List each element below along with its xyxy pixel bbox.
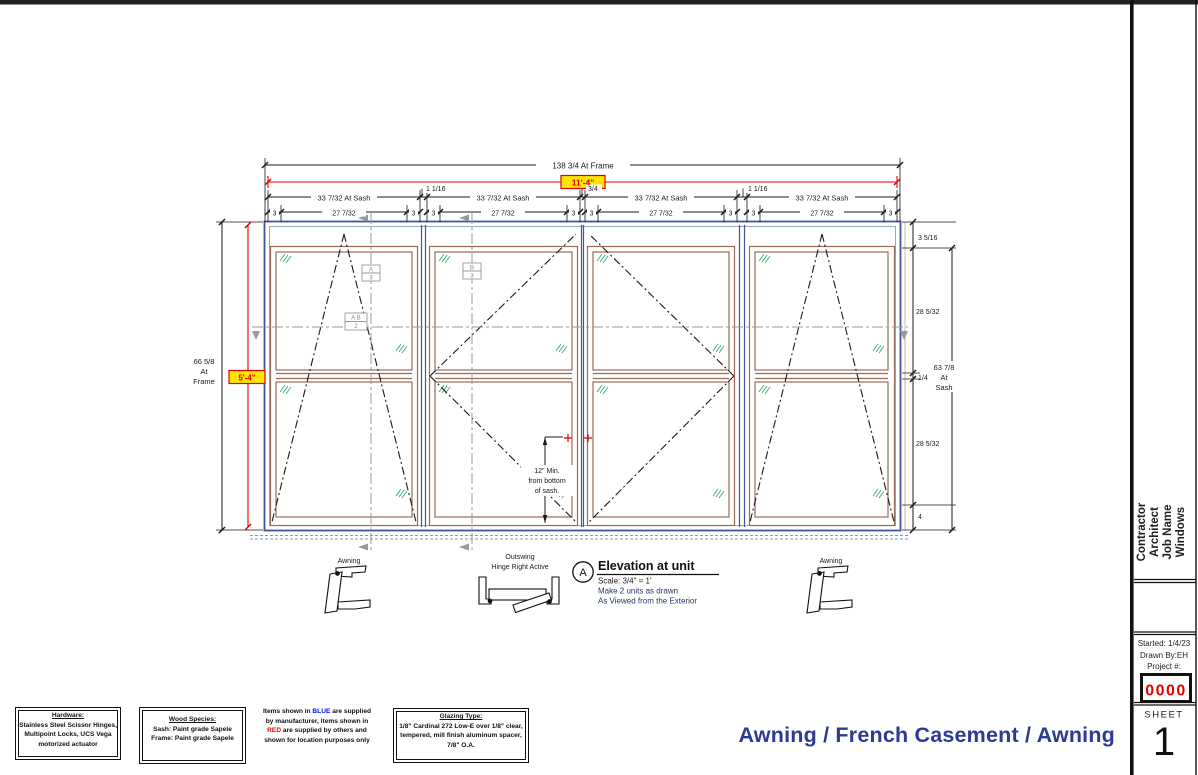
dim-stile-7: 3 [752,211,756,218]
dim-stile-8: 3 [889,211,893,218]
marker-b-letter: B [470,265,474,272]
glazing-note-line: 7/8" O.A. [397,741,525,751]
page-border [0,0,1198,775]
titleblock-contractor: Contractor [1136,502,1148,561]
dim-sash-height-2: At [940,373,948,382]
dim-stile-6: 3 [729,211,733,218]
sheet-number: 1 [1153,720,1175,764]
supply-note-line1: Items shown in BLUE are supplied [254,707,380,717]
glazing-note-title: Glazing Type: [397,712,525,722]
supply-note-line2: by manufacturer, items shown in [254,717,380,727]
sash-panel-3 [588,247,735,526]
dim-rough-height: 5'-4" [238,374,255,383]
dim-glass-width-3: 27 7/32 [649,211,672,218]
glazing-note-line: tempered, mill finish aluminum spacer, [397,731,525,741]
supply-note: Items shown in BLUE are supplied by manu… [254,707,380,755]
dim-sash-width-1: 33 7/32 At Sash [318,194,371,203]
drawing-sheet: A 3 B 3 A B 2 [0,0,1198,775]
dim-sash-height-3: Sash [935,383,952,392]
elevation-title: Elevation at unit [598,559,695,573]
label-awning-left: Awning [338,558,361,565]
glazing-note-line: 1/8" Cardinal 272 Low-E over 1/8" clear, [397,722,525,732]
dim-glass-width-2: 27 7/32 [491,211,514,218]
wood-note-line: Frame: Paint grade Sapele [143,734,242,744]
blue-keyword: BLUE [312,708,330,715]
hardware-note-line: motorized actuator [19,740,117,750]
marker-a-sheet: 3 [369,275,373,282]
dim-head: 3 5/16 [918,235,938,242]
red-keyword: RED [267,727,281,734]
titleblock-job-name: Job Name [1162,505,1174,560]
dim-mullion-1: 1 1/16 [426,186,446,193]
sash-panel-4 [750,247,895,526]
dim-glass-height-upper: 28 5/32 [916,309,939,316]
dim-sash-height-1: 63 7/8 [934,363,955,372]
dim-stile-1: 3 [273,211,277,218]
dim-frame-height-1: 66 5/8 [194,357,215,366]
glazing-note-box: Glazing Type: 1/8" Cardinal 272 Low-E ov… [393,708,529,763]
drawing-title: Awning / French Casement / Awning [640,723,1115,748]
label-outswing-2: Hinge Right Active [491,564,548,571]
dim-mullion-2: 3/4 [588,186,598,193]
hardware-note-line: Multipoint Locks, UCS Vega [19,730,117,740]
label-awning-right: Awning [820,558,843,565]
window-frame [250,222,910,540]
dim-glass-width-1: 27 7/32 [332,211,355,218]
elevation-marker-letter: A [579,567,587,579]
dim-stile-2: 3 [412,211,416,218]
supply-note-line4: shown for location purposes only [254,736,380,746]
dim-frame-width: 138 3/4 At Frame [552,162,614,171]
hardware-note-title: Hardware: [19,711,117,721]
sash-panel-1 [271,247,418,526]
marker-ab-letters: A B [351,315,361,322]
marker-ab-sheet: 2 [354,323,358,330]
titleblock-architect: Architect [1149,507,1161,557]
titleblock-started: Started: 1/4/23 [1138,639,1191,648]
handle-note-3: of sash. [535,488,560,495]
supply-note-line3: RED are supplied by others and [254,726,380,736]
dim-sash-width-4: 33 7/32 At Sash [796,194,849,203]
titleblock-drawn-by: Drawn By:EH [1140,651,1188,660]
elevation-note: A Elevation at unit Scale: 3/4" = 1' Mak… [573,559,719,606]
titleblock-windows: Windows [1175,507,1187,557]
handle-note-2: from bottom [528,478,566,485]
wood-note-title: Wood Species: [143,715,242,725]
detail-markers [345,263,481,330]
dim-sill: 4 [918,514,922,521]
title-block: Contractor Architect Job Name Windows St… [1134,502,1196,764]
elevation-note-line3: As Viewed from the Exterior [598,597,697,606]
dim-sash-width-3: 33 7/32 At Sash [635,194,688,203]
hardware-note-box: Hardware: Stainless Steel Scissor Hinges… [15,707,121,760]
dim-rail: 1/4 [918,375,928,382]
dim-glass-width-4: 27 7/32 [810,211,833,218]
sheet-label: SHEET [1144,710,1183,721]
wood-note-line: Sash: Paint grade Sapele [143,725,242,735]
project-number: 0000 [1145,683,1187,700]
dim-stile-4: 3 [572,211,576,218]
wood-species-note-box: Wood Species: Sash: Paint grade Sapele F… [139,707,246,764]
hardware-note-line: Stainless Steel Scissor Hinges, [19,721,117,731]
dim-stile-3: 3 [432,211,436,218]
elevation-drawing-svg: A 3 B 3 A B 2 [0,0,1198,775]
dim-stile-5: 3 [590,211,594,218]
dim-frame-height-2: At [200,367,208,376]
handle-note-1: 12" Min. [534,468,559,475]
titleblock-project-label: Project #: [1147,662,1181,671]
label-outswing-1: Outswing [505,554,534,561]
dim-sash-width-2: 33 7/32 At Sash [477,194,530,203]
dim-glass-height-lower: 28 5/32 [916,441,939,448]
elevation-scale: Scale: 3/4" = 1' [598,577,652,586]
outswing-hinge-icon [479,577,559,613]
elevation-note-line2: Make 2 units as drawn [598,587,678,596]
dim-frame-height-3: Frame [193,377,215,386]
marker-b-sheet: 3 [470,273,474,280]
dim-mullion-3: 1 1/16 [748,186,768,193]
sash-panels [271,247,895,526]
